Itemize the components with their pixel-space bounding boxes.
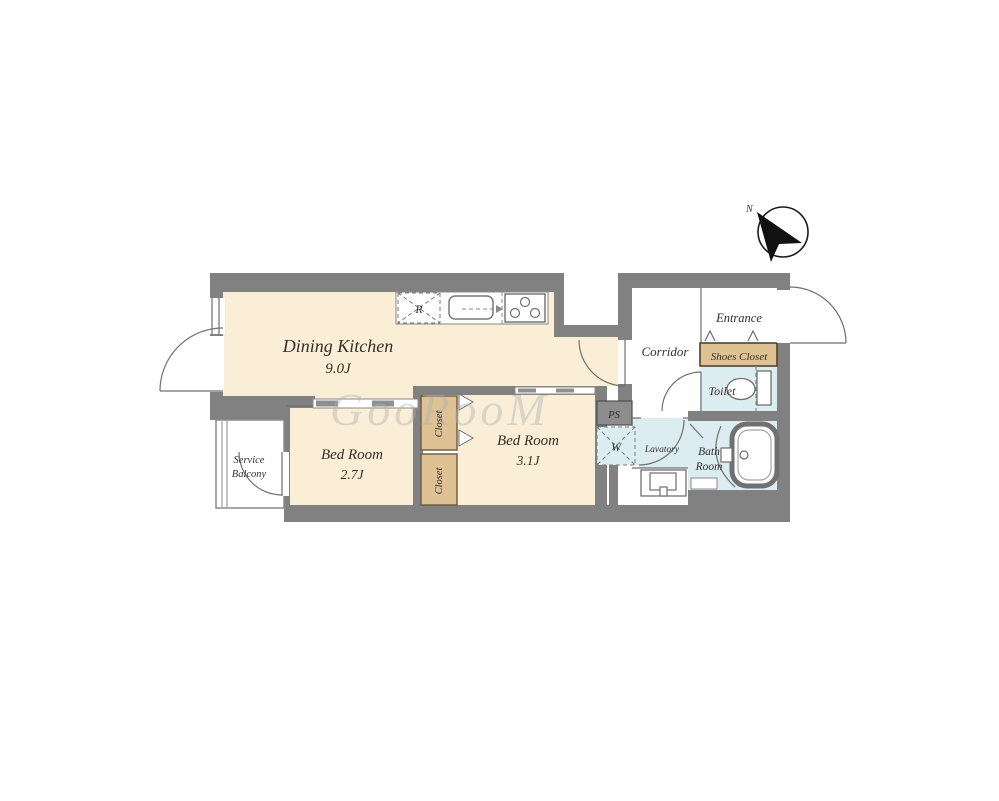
bath-room-label-1: Bath — [698, 446, 720, 458]
sliding-panel — [556, 389, 574, 393]
shoes-closet-label: Shoes Closet — [711, 351, 768, 363]
bath-room-label-2: Room — [695, 461, 723, 473]
floor-plan-svg: N GooRooM Dining Kitchen 9.0J Bed Room 2… — [0, 0, 999, 801]
compass: N — [745, 204, 808, 262]
service-balcony-label-1: Service — [234, 455, 265, 466]
dining-kitchen-label: Dining Kitchen — [282, 336, 394, 356]
refrigerator-label: R — [414, 304, 422, 316]
bed-room-small-size: 2.7J — [341, 467, 365, 482]
corridor-label: Corridor — [642, 344, 690, 359]
entrance-door — [777, 287, 846, 343]
toilet-label: Toilet — [709, 384, 737, 398]
bed-room-large-size: 3.1J — [516, 453, 541, 468]
kitchen-sink — [449, 296, 493, 319]
stove — [505, 294, 545, 322]
pipe-space-label: PS — [607, 410, 620, 421]
floor-plan-image: N GooRooM Dining Kitchen 9.0J Bed Room 2… — [0, 0, 999, 801]
bed-room-large-label: Bed Room — [497, 433, 559, 449]
vanity-sink — [641, 470, 686, 496]
bed-room-small-label: Bed Room — [321, 447, 383, 463]
lavatory-label: Lavatory — [644, 445, 680, 455]
washing-machine-label: W — [611, 442, 622, 454]
closet-lower-label: Closet — [434, 467, 445, 495]
compass-north-label: N — [745, 204, 754, 215]
dk-exterior-door — [160, 328, 224, 392]
entrance-label: Entrance — [715, 311, 762, 325]
closet-upper-label: Closet — [434, 410, 445, 438]
dining-kitchen-size: 9.0J — [325, 361, 352, 377]
service-balcony-label-2: Balcony — [232, 469, 267, 480]
